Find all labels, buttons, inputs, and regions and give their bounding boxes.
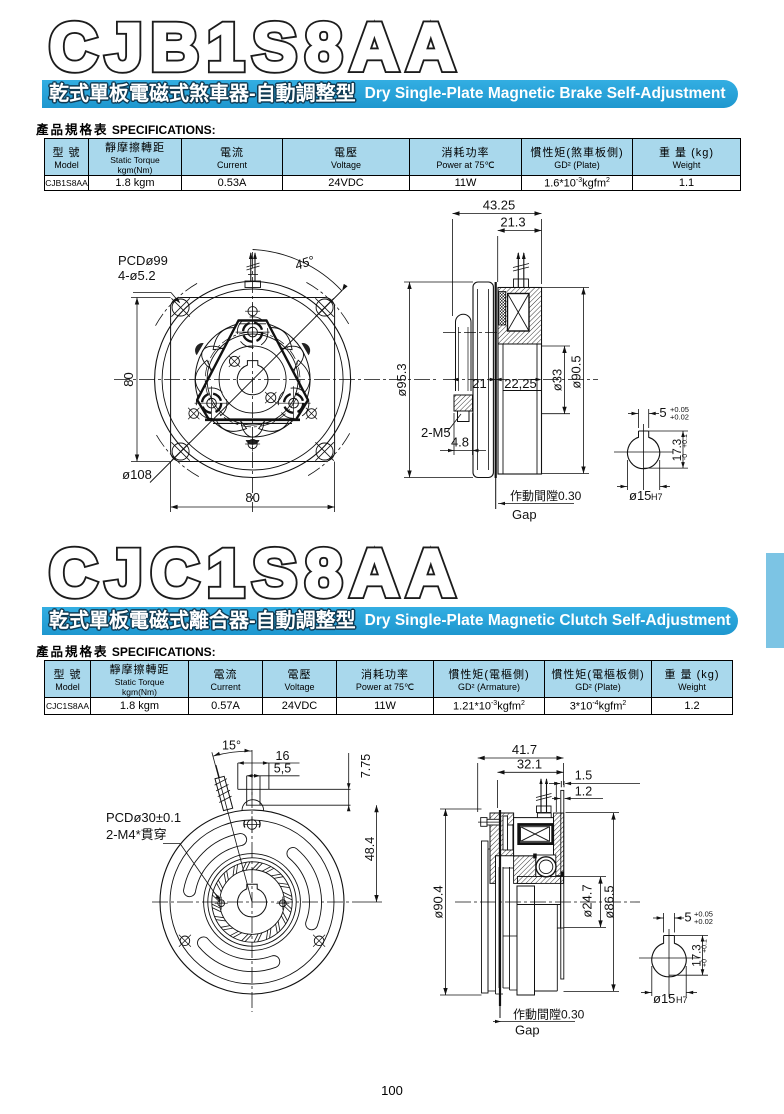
- svg-text:1.2: 1.2: [575, 785, 592, 799]
- svg-text:+0: +0: [702, 959, 709, 967]
- svg-text:ø95.3: ø95.3: [394, 363, 409, 396]
- svg-text:-0: -0: [682, 454, 689, 460]
- svg-text:H7: H7: [651, 492, 663, 502]
- svg-text:45°: 45°: [293, 253, 316, 273]
- svg-text:+0.02: +0.02: [670, 413, 689, 422]
- svg-text:15°: 15°: [222, 739, 241, 753]
- svg-text:ø108: ø108: [122, 467, 152, 482]
- svg-text:2-M5: 2-M5: [421, 425, 451, 440]
- svg-text:ø90.4: ø90.4: [431, 885, 446, 918]
- svg-text:PCDø99: PCDø99: [118, 253, 168, 268]
- svg-text:作動間隚0.30: 作動間隚0.30: [513, 1007, 585, 1022]
- svg-text:Gap: Gap: [512, 507, 537, 522]
- svg-text:32.1: 32.1: [517, 757, 542, 772]
- svg-text:PCDø30±0.1: PCDø30±0.1: [106, 810, 181, 825]
- svg-text:21.3: 21.3: [500, 215, 525, 230]
- svg-text:+0.1: +0.1: [702, 939, 709, 953]
- svg-text:ø90.5: ø90.5: [569, 355, 584, 388]
- svg-text:5: 5: [684, 910, 691, 925]
- svg-text:4.8: 4.8: [451, 435, 469, 450]
- svg-text:2-M4*貫穿: 2-M4*貫穿: [106, 827, 167, 842]
- svg-text:+0.1: +0.1: [682, 434, 689, 448]
- svg-text:H7: H7: [676, 995, 688, 1005]
- svg-text:ø33: ø33: [550, 369, 565, 391]
- svg-text:41.7: 41.7: [512, 742, 537, 757]
- svg-text:1.5: 1.5: [575, 769, 592, 783]
- svg-text:5,5: 5,5: [274, 762, 291, 776]
- svg-text:ø15: ø15: [629, 488, 651, 503]
- svg-text:5: 5: [659, 405, 666, 420]
- svg-text:ø15: ø15: [653, 991, 675, 1006]
- svg-text:80: 80: [121, 372, 136, 386]
- svg-text:7.75: 7.75: [359, 754, 373, 778]
- svg-text:43.25: 43.25: [483, 198, 516, 213]
- svg-text:ø24.7: ø24.7: [580, 884, 595, 917]
- svg-text:Gap: Gap: [515, 1023, 540, 1038]
- svg-text:ø86.5: ø86.5: [602, 885, 617, 918]
- svg-text:22,25: 22,25: [504, 376, 537, 391]
- svg-text:作動間隚0.30: 作動間隚0.30: [510, 488, 582, 503]
- svg-text:48.4: 48.4: [363, 837, 377, 861]
- svg-text:4-ø5.2: 4-ø5.2: [118, 268, 156, 283]
- svg-text:21: 21: [472, 376, 486, 391]
- svg-text:80: 80: [245, 490, 259, 505]
- svg-text:+0.02: +0.02: [694, 917, 713, 926]
